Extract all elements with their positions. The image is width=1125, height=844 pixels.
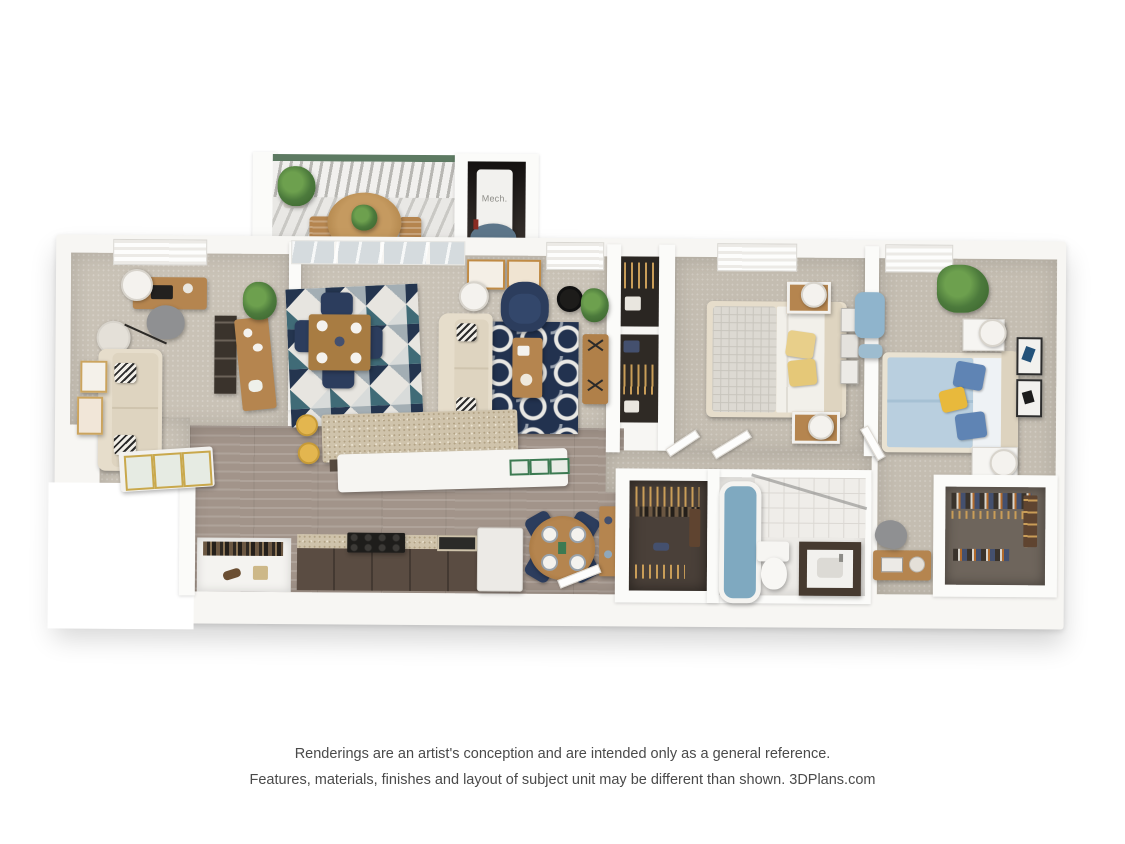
bathtub xyxy=(719,481,762,603)
patterned-blanket xyxy=(712,306,777,412)
laptop xyxy=(151,285,173,299)
closet-bath-wall xyxy=(707,469,720,603)
closet1-hanging-clothes xyxy=(635,487,699,507)
plate xyxy=(317,320,328,331)
flowers xyxy=(248,379,263,392)
vase xyxy=(252,343,263,352)
range-stove xyxy=(347,532,405,552)
blue-pillow xyxy=(954,411,987,441)
balcony-sliding-door xyxy=(291,240,465,265)
art-abstract xyxy=(1021,346,1035,363)
vase xyxy=(243,328,253,338)
coffee-table-book xyxy=(517,346,529,356)
den-wall-art-1 xyxy=(80,361,107,393)
closet1-hanging-clothes xyxy=(635,565,685,579)
closet1-shoes xyxy=(653,543,669,551)
living-sofa xyxy=(438,313,493,423)
closet-hangers xyxy=(624,262,656,288)
shoes xyxy=(222,567,242,581)
walkin-closet1-floor xyxy=(629,480,708,591)
plate xyxy=(541,554,558,571)
plate xyxy=(316,352,327,363)
bistro-table-plant xyxy=(351,205,377,231)
desk-decor xyxy=(909,556,925,572)
art-abstract xyxy=(1022,390,1035,404)
floor-plan: Mech. xyxy=(0,0,1125,844)
kitchen-sink xyxy=(437,535,477,551)
nightstand-lamp xyxy=(990,449,1018,477)
lounge-chair xyxy=(855,292,885,338)
nightstand-lamp xyxy=(979,319,1007,347)
mech-label: Mech. xyxy=(477,193,513,203)
bathroom-tile-wall xyxy=(753,477,865,538)
centerpiece xyxy=(558,542,566,554)
laptop xyxy=(881,557,903,572)
walkin-closet2-floor xyxy=(945,487,1046,586)
dining-table xyxy=(308,314,370,370)
balcony-plant xyxy=(278,166,316,206)
living-plant xyxy=(581,288,609,322)
bedroom2-bed xyxy=(882,352,1019,453)
coffee-table xyxy=(512,338,542,398)
media-console xyxy=(582,334,608,404)
hall-closet-bay-1 xyxy=(621,256,659,326)
notch-wall xyxy=(179,475,196,595)
living-side-lamp xyxy=(459,281,489,311)
bedroom1-wall-art xyxy=(840,360,858,384)
den-window xyxy=(113,239,207,266)
plate xyxy=(569,526,586,543)
hall-closet-bay-2 xyxy=(620,334,659,422)
basket xyxy=(253,566,268,580)
nightstand-lamp xyxy=(808,414,834,440)
closet2-hanging-clothes xyxy=(951,493,1031,510)
centerpiece xyxy=(335,336,345,346)
bedroom1-bed xyxy=(706,301,847,418)
bedroom1-wall-art xyxy=(840,334,858,358)
palm-plant xyxy=(937,265,989,313)
lounge-ottoman xyxy=(858,344,882,358)
plate xyxy=(350,353,361,364)
serving-tray xyxy=(549,458,569,475)
serving-tray xyxy=(509,459,529,476)
cushion-seam xyxy=(112,407,158,409)
glass-panel xyxy=(182,450,213,487)
closet-bin xyxy=(623,340,639,352)
sofa-seam xyxy=(454,367,488,369)
closet2-shelf-unit xyxy=(1023,495,1037,547)
bar-stool-1 xyxy=(296,414,318,436)
ladder-shelf xyxy=(214,316,237,394)
disclaimer-line-2: Features, materials, finishes and layout… xyxy=(0,772,1125,789)
breakfast-bar xyxy=(337,448,568,492)
faucet xyxy=(839,554,843,562)
wall-clock xyxy=(557,286,583,312)
bedroom2-wall-art-1 xyxy=(1016,337,1042,375)
bathroom-vanity xyxy=(799,542,861,596)
disclaimer: Renderings are an artist's conception an… xyxy=(0,746,1125,798)
striped-pillow xyxy=(114,363,136,383)
floor-plan-page: Mech. xyxy=(0,0,1125,844)
disclaimer-line-1: Renderings are an artist's conception an… xyxy=(0,746,1125,763)
closet-bedroom1-wall xyxy=(658,245,675,451)
yellow-pillow xyxy=(787,358,817,387)
sofa-pillow xyxy=(457,323,477,341)
pantry-shelf-items xyxy=(203,541,283,556)
living-window xyxy=(546,242,604,270)
bar-stool-2 xyxy=(298,442,320,464)
mech-valve xyxy=(473,219,478,229)
closet-hangers xyxy=(623,364,655,394)
closet-box xyxy=(624,400,639,412)
armchair-seat xyxy=(509,294,541,324)
desk-plant xyxy=(183,283,193,293)
closet2-clothes xyxy=(953,549,1009,561)
toilet-bowl xyxy=(761,557,787,589)
console-decor xyxy=(604,516,612,524)
nightstand-lamp xyxy=(801,282,827,308)
closet-box xyxy=(625,296,641,310)
glass-panel xyxy=(153,452,184,489)
water-heater: Mech. xyxy=(476,169,512,231)
plate xyxy=(541,526,558,543)
closet2-hangers xyxy=(951,511,1031,520)
closet1-shelf-unit xyxy=(689,509,700,547)
pendant-lamp xyxy=(121,269,153,301)
glass-console xyxy=(118,446,214,492)
bedroom2-wall-art-2 xyxy=(1016,379,1042,417)
glass-panel xyxy=(124,454,155,491)
plate xyxy=(351,323,362,334)
den-wall-art-2 xyxy=(77,397,103,435)
bedroom1-window xyxy=(717,243,797,272)
console-decor xyxy=(604,550,612,558)
bedroom2-desk xyxy=(873,550,931,580)
pantry-closet xyxy=(197,537,291,592)
yellow-pillow xyxy=(785,330,816,360)
coffee-table-tray xyxy=(520,374,532,386)
den-plant xyxy=(243,282,277,320)
desk-chair xyxy=(147,305,185,339)
serving-tray xyxy=(529,459,549,476)
refrigerator xyxy=(477,527,523,591)
accent-armchair xyxy=(501,282,549,332)
dining-chair-n xyxy=(321,292,353,316)
exterior-notch xyxy=(48,482,195,629)
